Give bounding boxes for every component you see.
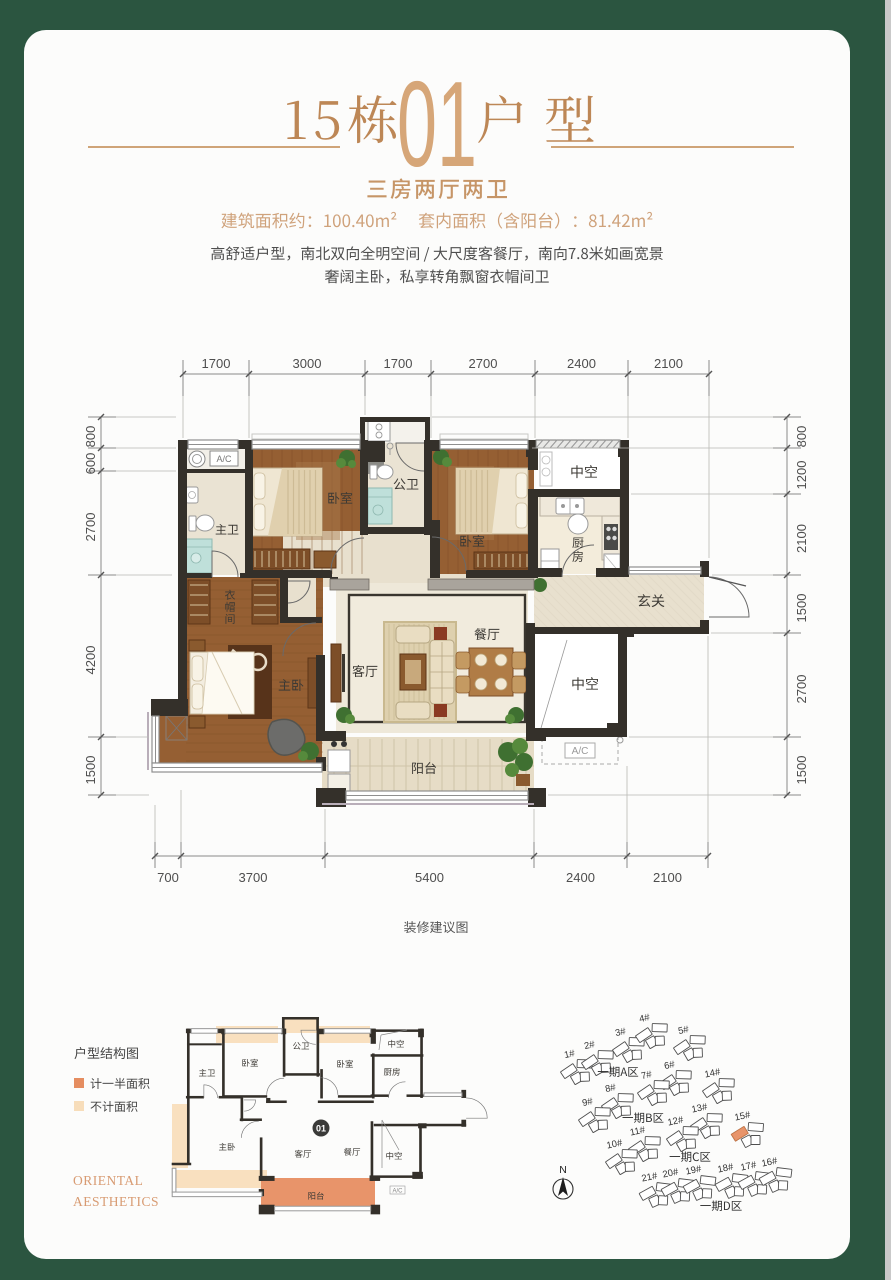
svg-text:2100: 2100 [653, 870, 682, 885]
svg-text:AESTHETICS: AESTHETICS [73, 1194, 159, 1209]
svg-text:2100: 2100 [654, 356, 683, 371]
svg-text:1700: 1700 [202, 356, 231, 371]
svg-text:01: 01 [397, 56, 477, 192]
svg-text:800: 800 [83, 426, 98, 448]
svg-text:1500: 1500 [83, 756, 98, 785]
svg-text:2400: 2400 [567, 356, 596, 371]
svg-text:2700: 2700 [794, 675, 809, 704]
svg-text:2700: 2700 [83, 513, 98, 542]
svg-text:5400: 5400 [415, 870, 444, 885]
svg-text:N: N [559, 1164, 567, 1176]
svg-text:2100: 2100 [794, 524, 809, 553]
svg-text:01: 01 [316, 1124, 326, 1134]
svg-text:A/C: A/C [572, 746, 589, 757]
svg-text:600: 600 [83, 453, 98, 475]
svg-text:1500: 1500 [794, 594, 809, 623]
svg-text:2400: 2400 [566, 870, 595, 885]
svg-text:700: 700 [157, 870, 179, 885]
svg-text:2700: 2700 [469, 356, 498, 371]
svg-text:1500: 1500 [794, 756, 809, 785]
svg-text:800: 800 [794, 426, 809, 448]
svg-text:3700: 3700 [239, 870, 268, 885]
svg-text:1700: 1700 [384, 356, 413, 371]
svg-text:ORIENTAL: ORIENTAL [73, 1173, 143, 1188]
svg-text:3000: 3000 [293, 356, 322, 371]
svg-text:4200: 4200 [83, 646, 98, 675]
svg-text:A/C: A/C [216, 454, 232, 464]
svg-text:A/C: A/C [392, 1189, 403, 1195]
svg-text:1200: 1200 [794, 461, 809, 490]
